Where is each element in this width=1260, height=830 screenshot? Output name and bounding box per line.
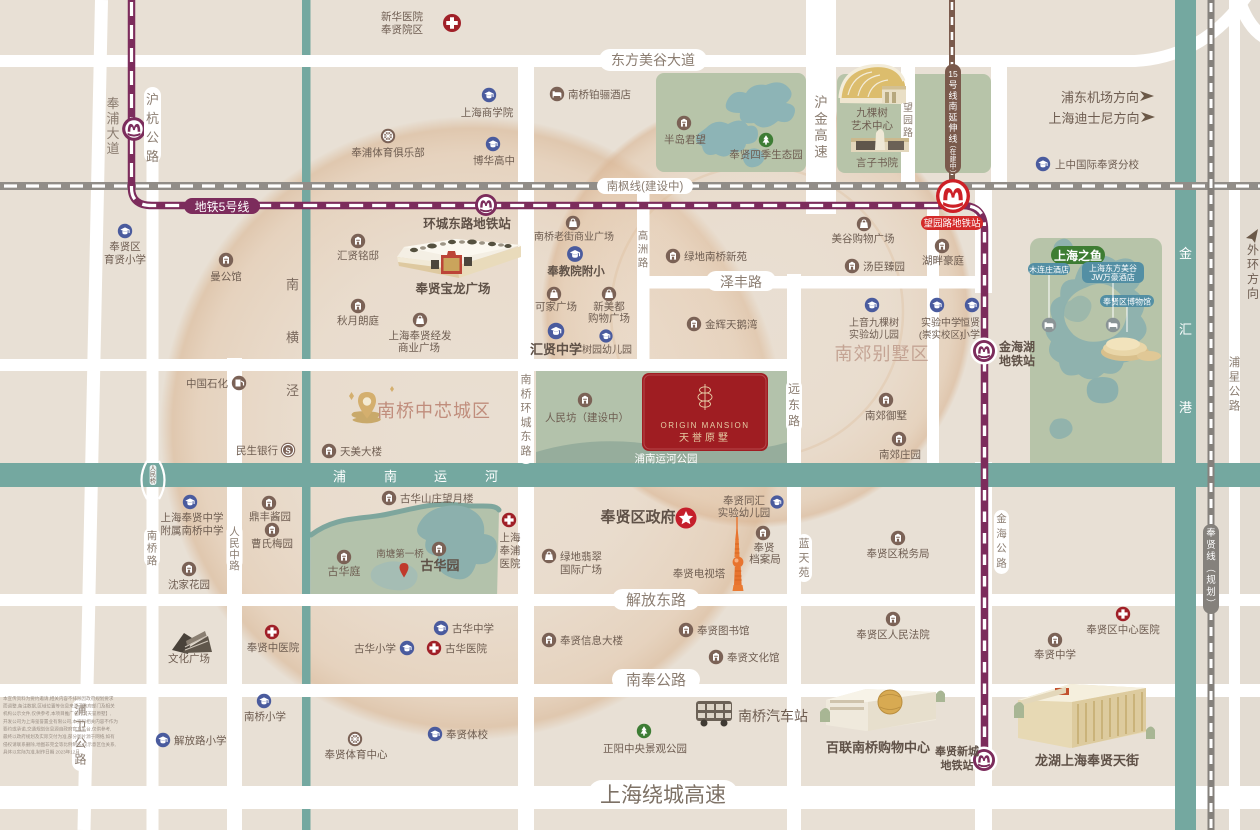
svg-text:购物广场: 购物广场	[588, 312, 630, 325]
svg-text:龙湖上海奉贤天街: 龙湖上海奉贤天街	[1035, 753, 1139, 768]
svg-text:浦: 浦	[333, 469, 346, 484]
svg-text:机构公示文件,仅供参考,本项目推广名为【天誉原墅】,: 机构公示文件,仅供参考,本项目推广名为【天誉原墅】,	[3, 710, 111, 717]
svg-text:地铁5号线: 地铁5号线	[195, 200, 250, 214]
svg-text:奉浦大道: 奉浦大道	[106, 96, 119, 156]
svg-text:南奉公路: 南奉公路	[626, 671, 686, 689]
svg-text:奉浦: 奉浦	[500, 544, 521, 557]
svg-text:半岛君望: 半岛君望	[664, 133, 706, 146]
svg-text:正阳中央景观公园: 正阳中央景观公园	[603, 742, 687, 755]
svg-text:育贤小学: 育贤小学	[104, 253, 146, 266]
svg-text:最终以政府规划及实际交付为准,部分图片源于网络,如有: 最终以政府规划及实际交付为准,部分图片源于网络,如有	[3, 733, 115, 740]
svg-text:人民坊（建设中）: 人民坊（建设中）	[545, 411, 629, 424]
svg-text:木连庄酒店: 木连庄酒店	[1029, 265, 1069, 275]
svg-text:上海东方美谷: 上海东方美谷	[1089, 263, 1137, 273]
svg-text:南桥小学: 南桥小学	[244, 710, 286, 723]
svg-text:南桥路: 南桥路	[147, 529, 158, 567]
svg-text:新美都: 新美都	[593, 300, 625, 313]
svg-text:JW万豪酒店: JW万豪酒店	[1091, 272, 1135, 282]
svg-text:上中国际奉贤分校: 上中国际奉贤分校	[1055, 158, 1139, 171]
svg-text:南桥老街商业广场: 南桥老街商业广场	[534, 230, 614, 243]
svg-text:泾: 泾	[286, 383, 299, 398]
svg-text:浦东机场方向: 浦东机场方向	[1061, 90, 1139, 105]
svg-text:树园幼儿园: 树园幼儿园	[582, 343, 632, 356]
svg-text:实验幼儿园: 实验幼儿园	[849, 328, 899, 341]
svg-text:本宣传资料为要约邀请,相关内容不排除因政府规划要求: 本宣传资料为要约邀请,相关内容不排除因政府规划要求	[3, 695, 114, 702]
svg-text:横: 横	[286, 330, 299, 345]
svg-text:具体以实际为准,制作日期 2023年12月.: 具体以实际为准,制作日期 2023年12月.	[3, 749, 81, 756]
svg-text:文化广场: 文化广场	[168, 652, 210, 665]
svg-text:民生银行: 民生银行	[236, 444, 278, 457]
svg-text:沈家花园: 沈家花园	[168, 578, 210, 591]
svg-text:古华庭: 古华庭	[328, 564, 361, 578]
svg-text:奉贤信息大楼: 奉贤信息大楼	[560, 634, 623, 647]
svg-text:南桥汽车站: 南桥汽车站	[738, 708, 808, 724]
svg-text:新华医院: 新华医院	[381, 10, 423, 23]
svg-text:奉贤文化馆: 奉贤文化馆	[727, 651, 780, 664]
svg-text:南郊御墅: 南郊御墅	[865, 409, 907, 422]
svg-text:上海奉贤中学: 上海奉贤中学	[161, 511, 224, 524]
svg-text:奉贤图书馆: 奉贤图书馆	[697, 624, 750, 637]
svg-text:奉贤区人民法院: 奉贤区人民法院	[856, 628, 930, 641]
svg-text:金: 金	[1179, 246, 1192, 261]
svg-text:古华园: 古华园	[420, 558, 459, 573]
svg-text:南郊庄园: 南郊庄园	[879, 448, 921, 461]
svg-text:南桥铂骊酒店: 南桥铂骊酒店	[568, 88, 631, 101]
svg-text:奉贤体育中心: 奉贤体育中心	[325, 748, 388, 761]
svg-text:开发公司为上海玺誉置业有限公司,本资料相关内容不作为: 开发公司为上海玺誉置业有限公司,本资料相关内容不作为	[3, 718, 118, 725]
svg-text:地铁站: 地铁站	[941, 758, 974, 772]
svg-text:言子书院: 言子书院	[856, 156, 898, 169]
svg-text:奉贤区博物馆: 奉贤区博物馆	[1103, 297, 1151, 307]
svg-text:人民桥: 人民桥	[150, 465, 156, 484]
svg-text:艺术中心: 艺术中心	[851, 119, 893, 132]
svg-text:医院: 医院	[500, 557, 521, 570]
svg-text:沪金高速: 沪金高速	[814, 95, 828, 160]
svg-text:上海迪士尼方向: 上海迪士尼方向	[1048, 111, 1139, 126]
svg-text:︵在建中︶: ︵在建中︶	[950, 142, 957, 178]
svg-text:奉贤院区: 奉贤院区	[381, 23, 423, 36]
svg-text:运: 运	[434, 469, 447, 484]
svg-text:东方美谷大道: 东方美谷大道	[611, 52, 695, 68]
svg-text:要约或承诺,交通规划信息源自政府官方平台,仅供参考,: 要约或承诺,交通规划信息源自政府官方平台,仅供参考,	[3, 725, 111, 732]
svg-text:上海之鱼: 上海之鱼	[1054, 248, 1102, 263]
svg-text:上海: 上海	[500, 531, 521, 544]
svg-text:浦南运河公园: 浦南运河公园	[635, 452, 698, 465]
svg-text:号线南延伸线: 号线南延伸线	[948, 80, 957, 144]
svg-text:档案局: 档案局	[749, 553, 781, 566]
svg-text:望园路: 望园路	[903, 101, 913, 139]
svg-text:港: 港	[1179, 400, 1192, 415]
svg-text:河: 河	[485, 469, 498, 484]
svg-text:奉贤区: 奉贤区	[109, 240, 141, 253]
svg-text:秋月朗庭: 秋月朗庭	[337, 314, 379, 327]
svg-text:奉贤区税务局: 奉贤区税务局	[867, 547, 930, 560]
svg-text:奉贤: 奉贤	[754, 541, 775, 554]
svg-text:奉贤中医院: 奉贤中医院	[247, 641, 300, 654]
svg-text:古华山庄望月楼: 古华山庄望月楼	[400, 492, 474, 505]
svg-text:南枫线(建设中): 南枫线(建设中)	[607, 179, 684, 193]
svg-text:古华中学: 古华中学	[452, 622, 494, 635]
svg-text:小学: 小学	[960, 328, 980, 341]
svg-text:绿地翡翠: 绿地翡翠	[560, 550, 602, 563]
svg-text:奉教院附小: 奉教院附小	[546, 264, 605, 278]
svg-text:奉贤线︵规划︶: 奉贤线︵规划︶	[1206, 527, 1216, 610]
svg-text:金海湖: 金海湖	[998, 339, 1035, 354]
svg-text:鼎丰酱园: 鼎丰酱园	[249, 510, 291, 523]
svg-text:上海绕城高速: 上海绕城高速	[600, 784, 726, 807]
svg-text:环城东路地铁站: 环城东路地铁站	[423, 216, 511, 231]
svg-text:中国石化: 中国石化	[186, 377, 228, 390]
svg-text:奉贤宝龙广场: 奉贤宝龙广场	[414, 281, 490, 296]
svg-text:奉贤新城: 奉贤新城	[934, 744, 979, 758]
svg-text:美谷购物广场: 美谷购物广场	[832, 232, 895, 245]
svg-text:(崇实校区): (崇实校区)	[919, 329, 963, 341]
svg-text:古华小学: 古华小学	[354, 642, 396, 655]
svg-text:奉浦体育俱乐部: 奉浦体育俱乐部	[351, 146, 425, 159]
svg-text:天誉原墅: 天誉原墅	[679, 431, 731, 444]
svg-text:奉贤同汇: 奉贤同汇	[723, 494, 765, 507]
svg-text:上海商学院: 上海商学院	[461, 106, 514, 119]
svg-text:汇贤中学: 汇贤中学	[530, 342, 582, 357]
svg-text:商业广场: 商业广场	[398, 341, 440, 354]
svg-text:奉贤四季生态园: 奉贤四季生态园	[729, 148, 803, 161]
svg-text:南: 南	[384, 469, 397, 484]
svg-text:天美大楼: 天美大楼	[340, 445, 382, 458]
svg-text:金辉天鹅湾: 金辉天鹅湾	[705, 318, 758, 331]
svg-text:而调整,备注数据,区域位置等信息来源于政府部门及相关: 而调整,备注数据,区域位置等信息来源于政府部门及相关	[3, 702, 115, 709]
svg-text:汇贤铭邸: 汇贤铭邸	[337, 249, 379, 262]
svg-text:曼公馆: 曼公馆	[210, 270, 242, 283]
svg-text:可家广场: 可家广场	[535, 300, 577, 313]
svg-text:人民中路: 人民中路	[229, 526, 240, 572]
svg-text:外环方向: 外环方向	[1247, 243, 1259, 301]
svg-text:南塘第一桥: 南塘第一桥	[376, 548, 424, 560]
svg-text:曹氏梅园: 曹氏梅园	[251, 537, 293, 550]
svg-text:九棵树: 九棵树	[856, 106, 888, 119]
svg-text:ORIGIN MANSION: ORIGIN MANSION	[660, 421, 749, 430]
svg-text:南桥中芯城区: 南桥中芯城区	[377, 401, 491, 421]
svg-text:远东路: 远东路	[788, 382, 800, 428]
svg-text:奉贤体校: 奉贤体校	[446, 728, 488, 741]
svg-text:湖畔豪庭: 湖畔豪庭	[922, 254, 964, 267]
svg-text:上海奉贤经发: 上海奉贤经发	[389, 329, 452, 342]
svg-text:15: 15	[948, 69, 958, 79]
svg-text:奉贤区政府: 奉贤区政府	[599, 508, 675, 526]
svg-text:国际广场: 国际广场	[560, 563, 602, 576]
svg-text:南: 南	[286, 277, 299, 292]
svg-text:蓝天苑: 蓝天苑	[799, 537, 810, 579]
svg-text:地铁站: 地铁站	[999, 353, 1035, 368]
svg-text:恒贤: 恒贤	[960, 316, 980, 329]
svg-text:解放路小学: 解放路小学	[174, 734, 227, 747]
svg-text:汤臣臻园: 汤臣臻园	[863, 260, 905, 273]
svg-text:解放东路: 解放东路	[626, 592, 686, 609]
svg-text:奉贤中学: 奉贤中学	[1034, 648, 1076, 661]
svg-text:望园路地铁站: 望园路地铁站	[923, 218, 981, 230]
svg-text:百联南桥购物中心: 百联南桥购物中心	[826, 740, 930, 755]
svg-text:实验中学: 实验中学	[921, 316, 961, 329]
svg-text:附属南桥中学: 附属南桥中学	[161, 524, 224, 537]
svg-text:实验幼儿园: 实验幼儿园	[718, 506, 771, 519]
svg-text:奉贤区中心医院: 奉贤区中心医院	[1086, 623, 1160, 636]
svg-text:汇: 汇	[1179, 322, 1192, 337]
svg-text:古华医院: 古华医院	[445, 642, 487, 655]
svg-text:高洲路: 高洲路	[638, 229, 649, 269]
svg-text:侵权请联系删除,地图非完全等比例制作,仅示意区位关系,: 侵权请联系删除,地图非完全等比例制作,仅示意区位关系,	[3, 741, 116, 748]
svg-text:南郊别墅区: 南郊别墅区	[835, 344, 930, 364]
svg-text:博华高中: 博华高中	[473, 154, 515, 167]
svg-text:奉贤电视塔: 奉贤电视塔	[673, 567, 726, 580]
svg-text:泽丰路: 泽丰路	[720, 274, 762, 290]
svg-text:上音九棵树: 上音九棵树	[849, 316, 899, 329]
svg-text:绿地南桥新苑: 绿地南桥新苑	[684, 250, 747, 263]
